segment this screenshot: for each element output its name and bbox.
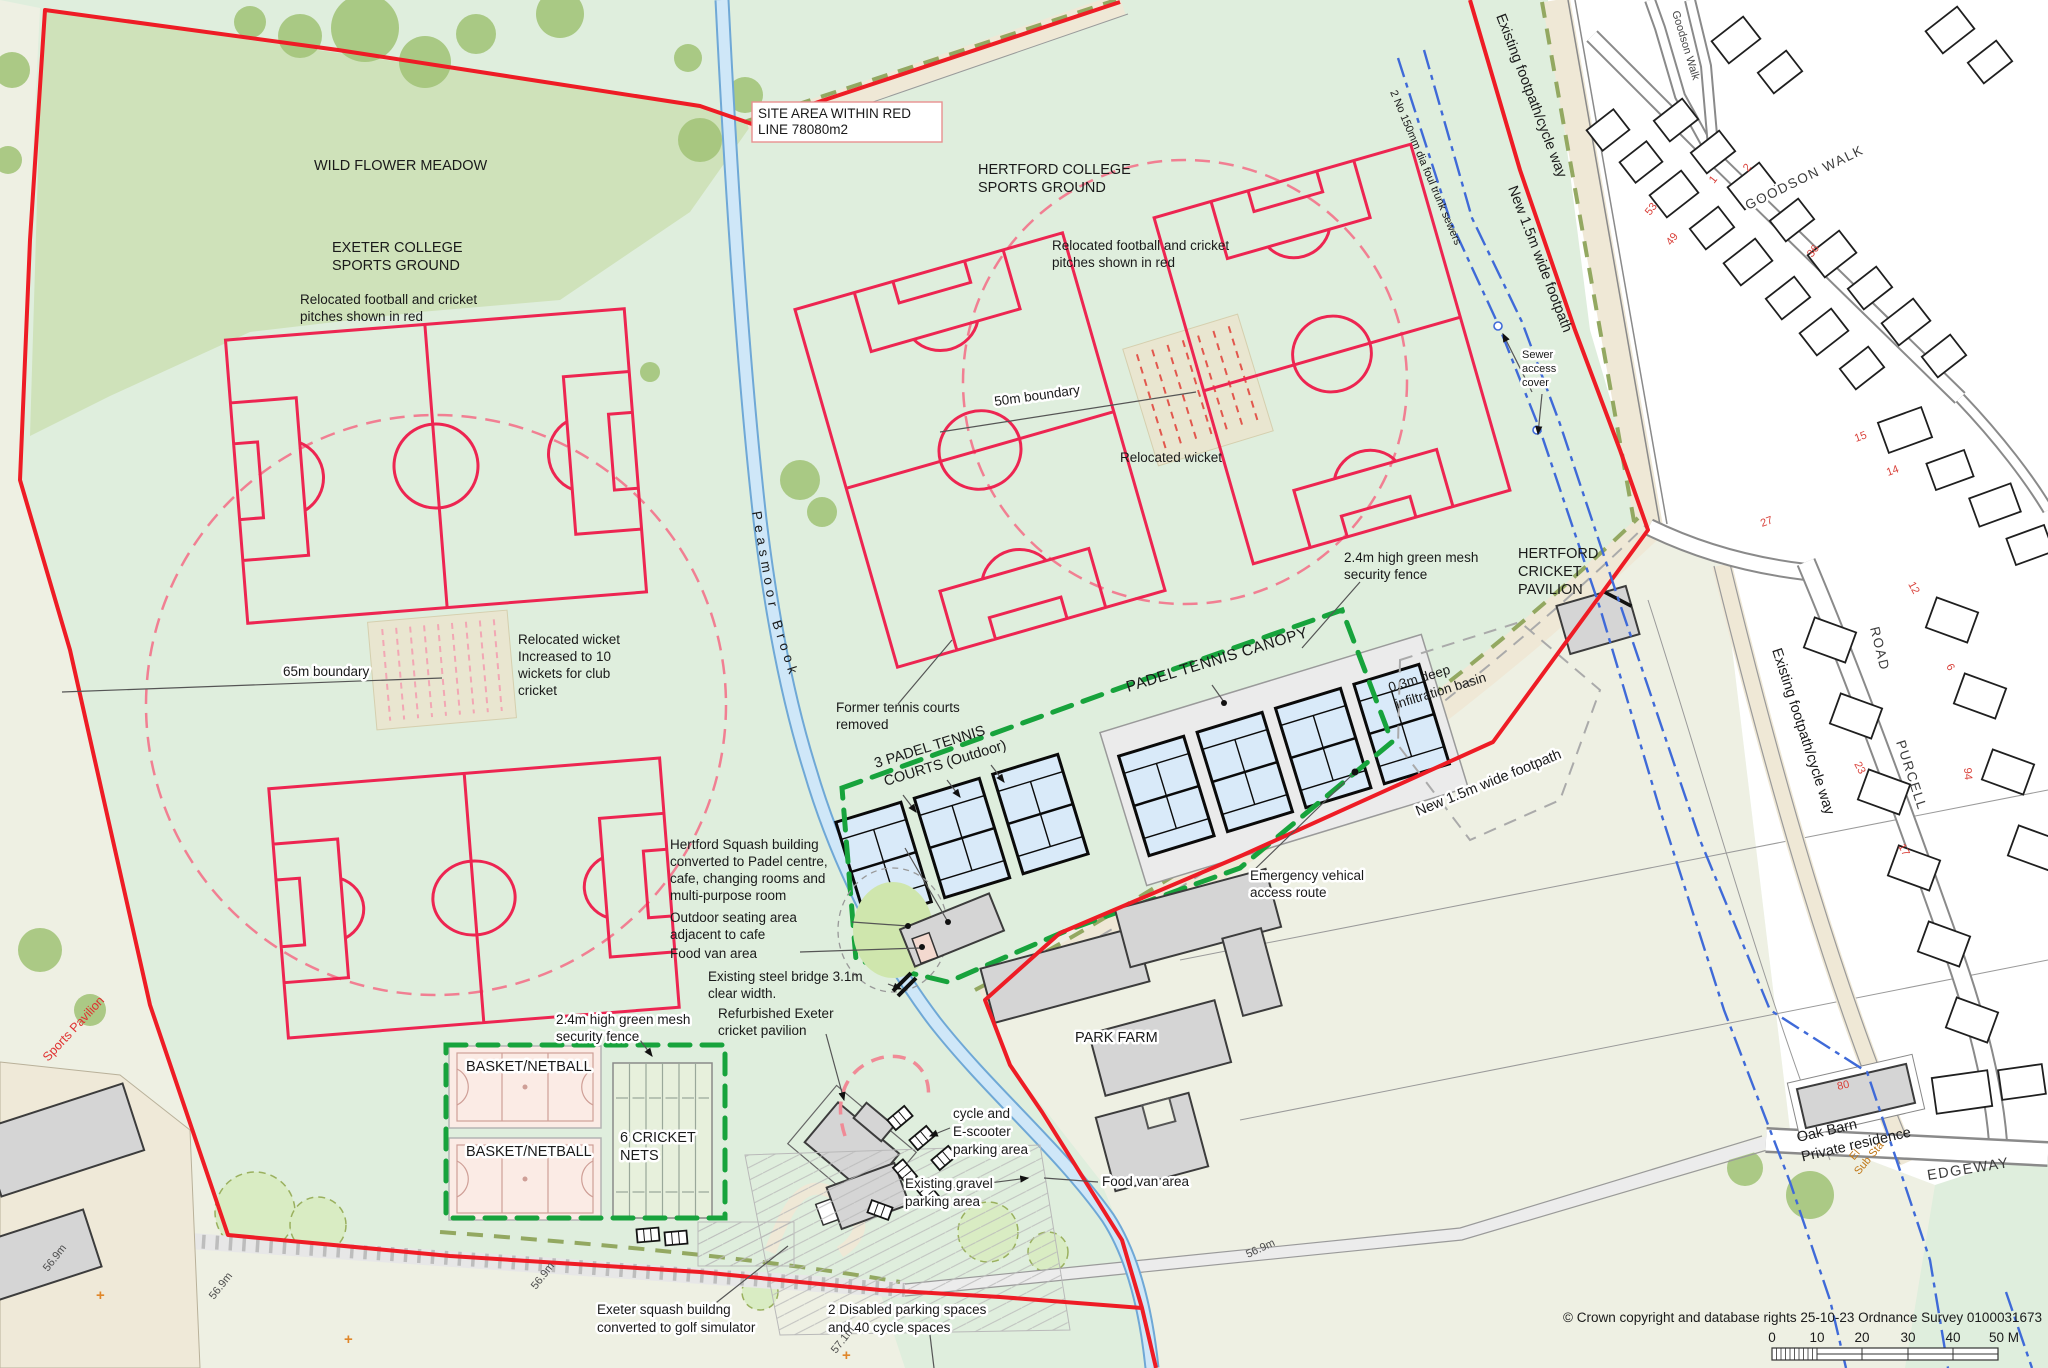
squash-hertford-1: Hertford Squash building	[670, 837, 819, 852]
food-van-left-label: Food van area	[670, 946, 758, 961]
mesh-fence-left-1: 2.4m high green mesh	[556, 1012, 690, 1027]
site-area-box: SITE AREA WITHIN RED LINE 78080m2	[752, 102, 942, 142]
cycle-parking-2: E-scooter	[953, 1124, 1011, 1139]
gravel-1: Existing gravel	[905, 1176, 993, 1191]
svg-text:30: 30	[1900, 1330, 1915, 1345]
house-number: 94	[1961, 767, 1974, 780]
exeter-wicket-square	[368, 610, 517, 730]
survey-mark: +	[96, 1287, 105, 1304]
hertford-pavilion-label-2: CRICKET	[1518, 564, 1582, 580]
wicket-left-4: cricket	[518, 683, 557, 698]
mesh-fence-left-2: security fence	[556, 1029, 639, 1044]
site-area-line1: SITE AREA WITHIN RED	[758, 106, 911, 121]
hertford-ground-label-1: HERTFORD COLLEGE	[978, 162, 1131, 178]
squash-hertford-4: multi-purpose room	[670, 888, 786, 903]
svg-text:40: 40	[1945, 1330, 1960, 1345]
cricket-nets-1: 6 CRICKET	[620, 1130, 696, 1146]
squash-exeter-2: converted to golf simulator	[597, 1320, 756, 1335]
svg-text:10: 10	[1809, 1330, 1824, 1345]
exeter-ground-label-2: SPORTS GROUND	[332, 258, 460, 274]
refurb-1: Refurbished Exeter	[718, 1006, 834, 1021]
survey-mark: +	[842, 1347, 851, 1364]
survey-mark: +	[344, 1331, 353, 1348]
relocated-pitches-left-2: pitches shown in red	[300, 309, 423, 324]
hertford-ground-label-2: SPORTS GROUND	[978, 180, 1106, 196]
svg-text:50 M: 50 M	[1989, 1330, 2019, 1345]
svg-text:0: 0	[1768, 1330, 1776, 1345]
wild-flower-meadow-label: WILD FLOWER MEADOW	[314, 158, 488, 174]
refurb-2: cricket pavilion	[718, 1023, 807, 1038]
seating-2: adjacent to cafe	[670, 927, 765, 942]
sewer-cover-2: access	[1522, 363, 1557, 375]
squash-exeter-1: Exeter squash buildng	[597, 1302, 731, 1317]
squash-hertford-3: cafe, changing rooms and	[670, 871, 825, 886]
cricket-nets-2: NETS	[620, 1148, 659, 1164]
hertford-pavilion-label-1: HERTFORD	[1518, 546, 1598, 562]
disabled-1: 2 Disabled parking spaces	[828, 1302, 987, 1317]
relocated-pitches-left-1: Relocated football and cricket	[300, 292, 477, 307]
basket-netball-2: BASKET/NETBALL	[466, 1144, 592, 1160]
relocated-pitches-right-2: pitches shown in red	[1052, 255, 1175, 270]
relocated-pitches-right-1: Relocated football and cricket	[1052, 238, 1229, 253]
cycle-parking-1: cycle and	[953, 1106, 1010, 1121]
mesh-fence-right-2: security fence	[1344, 567, 1427, 582]
sewer-cover-3: cover	[1522, 377, 1549, 389]
basket-netball-1: BASKET/NETBALL	[466, 1059, 592, 1075]
bridge-2: clear width.	[708, 986, 776, 1001]
emergency-1: Emergency vehical	[1250, 868, 1364, 883]
squash-hertford-2: converted to Padel centre,	[670, 854, 828, 869]
gravel-2: parking area	[905, 1194, 981, 1209]
exeter-ground-label-1: EXETER COLLEGE	[332, 240, 463, 256]
site-plan-page: SITE AREA WITHIN RED LINE 78080m2 WILD F…	[0, 0, 2048, 1368]
wicket-left-1: Relocated wicket	[518, 632, 620, 647]
boundary-65m-label: 65m boundary	[283, 664, 370, 679]
emergency-2: access route	[1250, 885, 1327, 900]
mesh-fence-right-1: 2.4m high green mesh	[1344, 550, 1478, 565]
relocated-wicket-right-label: Relocated wicket	[1120, 450, 1222, 465]
former-tennis-1: Former tennis courts	[836, 700, 960, 715]
hertford-pavilion-label-3: PAVILION	[1518, 582, 1583, 598]
wicket-left-2: Increased to 10	[518, 649, 611, 664]
site-plan-svg: SITE AREA WITHIN RED LINE 78080m2 WILD F…	[0, 0, 2048, 1368]
site-area-line2: LINE 78080m2	[758, 122, 848, 137]
seating-1: Outdoor seating area	[670, 910, 797, 925]
sewer-cover-1: Sewer	[1522, 349, 1554, 361]
park-farm-label: PARK FARM	[1075, 1030, 1158, 1046]
svg-text:20: 20	[1854, 1330, 1869, 1345]
copyright-text: © Crown copyright and database rights 25…	[1563, 1310, 2042, 1325]
wicket-left-3: wickets for club	[517, 666, 610, 681]
former-tennis-2: removed	[836, 717, 889, 732]
food-van-right-label: Food van area	[1102, 1174, 1190, 1189]
bridge-1: Existing steel bridge 3.1m	[708, 969, 863, 984]
cycle-parking-3: parking area	[953, 1142, 1029, 1157]
